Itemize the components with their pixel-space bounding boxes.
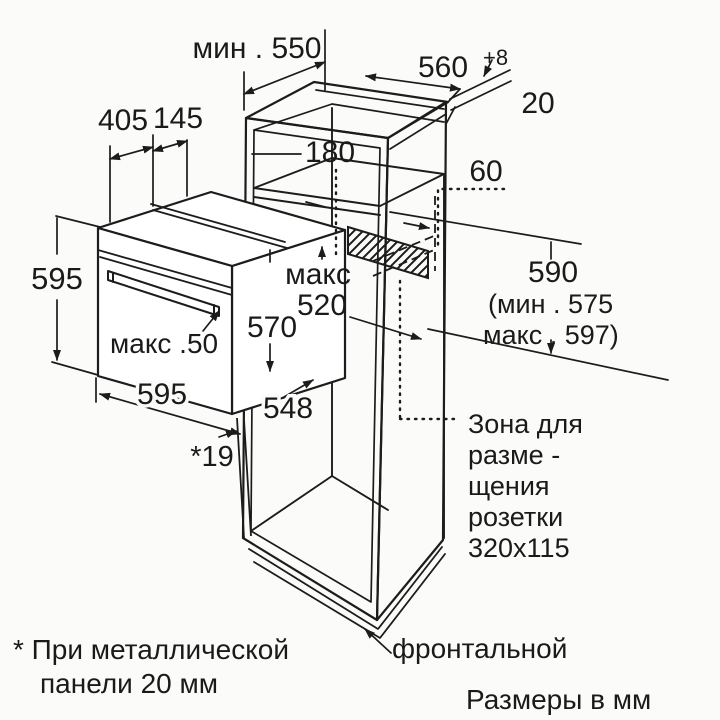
dim-min-depth-label: мин . 550 bbox=[192, 32, 321, 65]
dim-405-arrow bbox=[110, 147, 153, 159]
dim-60-label: 60 bbox=[469, 155, 502, 188]
dim-19-label: *19 bbox=[190, 441, 234, 473]
footnote-labels: * При металлической фронтальной панели 2… bbox=[13, 633, 651, 715]
dim-60-arrow bbox=[404, 223, 429, 228]
dim-520-label-line1: макс bbox=[285, 258, 351, 291]
installation-diagram-page: мин . 550 560 +8 20 405 145 180 60 595 м… bbox=[0, 0, 720, 720]
dim-niche-height-min-label: (мин . 575 bbox=[488, 289, 613, 319]
dim-145-label: 145 bbox=[153, 102, 203, 135]
socket-note-line-4: розетки bbox=[468, 502, 563, 532]
dim-oven-width-label: 595 bbox=[137, 378, 187, 411]
dim-405-label: 405 bbox=[98, 104, 148, 137]
dim-panel-label: 20 bbox=[521, 87, 554, 120]
dim-548-label: 548 bbox=[263, 392, 313, 425]
dim-niche-width-tol-label: +8 bbox=[483, 45, 508, 70]
dim-145-arrow bbox=[153, 141, 187, 151]
dim-520-leader bbox=[350, 317, 421, 339]
dim-handle-label: макс .50 bbox=[110, 328, 218, 359]
socket-note-line-5: 320x115 bbox=[468, 533, 570, 563]
socket-note-line-1: Зона для bbox=[468, 409, 583, 439]
footnote-metal-panel-1: * При металлической bbox=[13, 634, 289, 665]
dim-520-label-line2: 520 bbox=[297, 289, 347, 322]
socket-zone-note: Зона для разме - щения розетки 320x115 bbox=[468, 409, 583, 563]
dim-60-dotted bbox=[438, 189, 504, 246]
dim-oven-height-label: 595 bbox=[31, 261, 83, 296]
footnote-metal-panel-3: панели 20 мм bbox=[40, 668, 218, 699]
footnote-units: Размеры в мм bbox=[466, 684, 651, 715]
dim-niche-height-max-label: макс . 597) bbox=[483, 320, 619, 350]
cabinet-floor bbox=[251, 476, 388, 531]
footnote-metal-panel-2: фронтальной bbox=[392, 633, 567, 664]
cabinet-top-face bbox=[246, 82, 448, 138]
socket-note-line-2: разме - bbox=[468, 440, 560, 470]
socket-zone-leader-dotted bbox=[400, 281, 460, 419]
dim-niche-width-label: 560 bbox=[418, 51, 468, 84]
oven-installation-diagram: мин . 550 560 +8 20 405 145 180 60 595 м… bbox=[0, 0, 720, 720]
dim-niche-height-label: 590 bbox=[528, 256, 578, 289]
socket-note-line-3: щения bbox=[468, 471, 550, 501]
dim-19-arrow bbox=[219, 431, 236, 437]
footnote-leader bbox=[365, 629, 391, 653]
dim-min-depth-arrow bbox=[244, 62, 325, 94]
cabinet-ceiling-lines bbox=[254, 104, 444, 130]
dim-180-label: 180 bbox=[305, 136, 355, 169]
dim-570-label: 570 bbox=[247, 311, 297, 344]
